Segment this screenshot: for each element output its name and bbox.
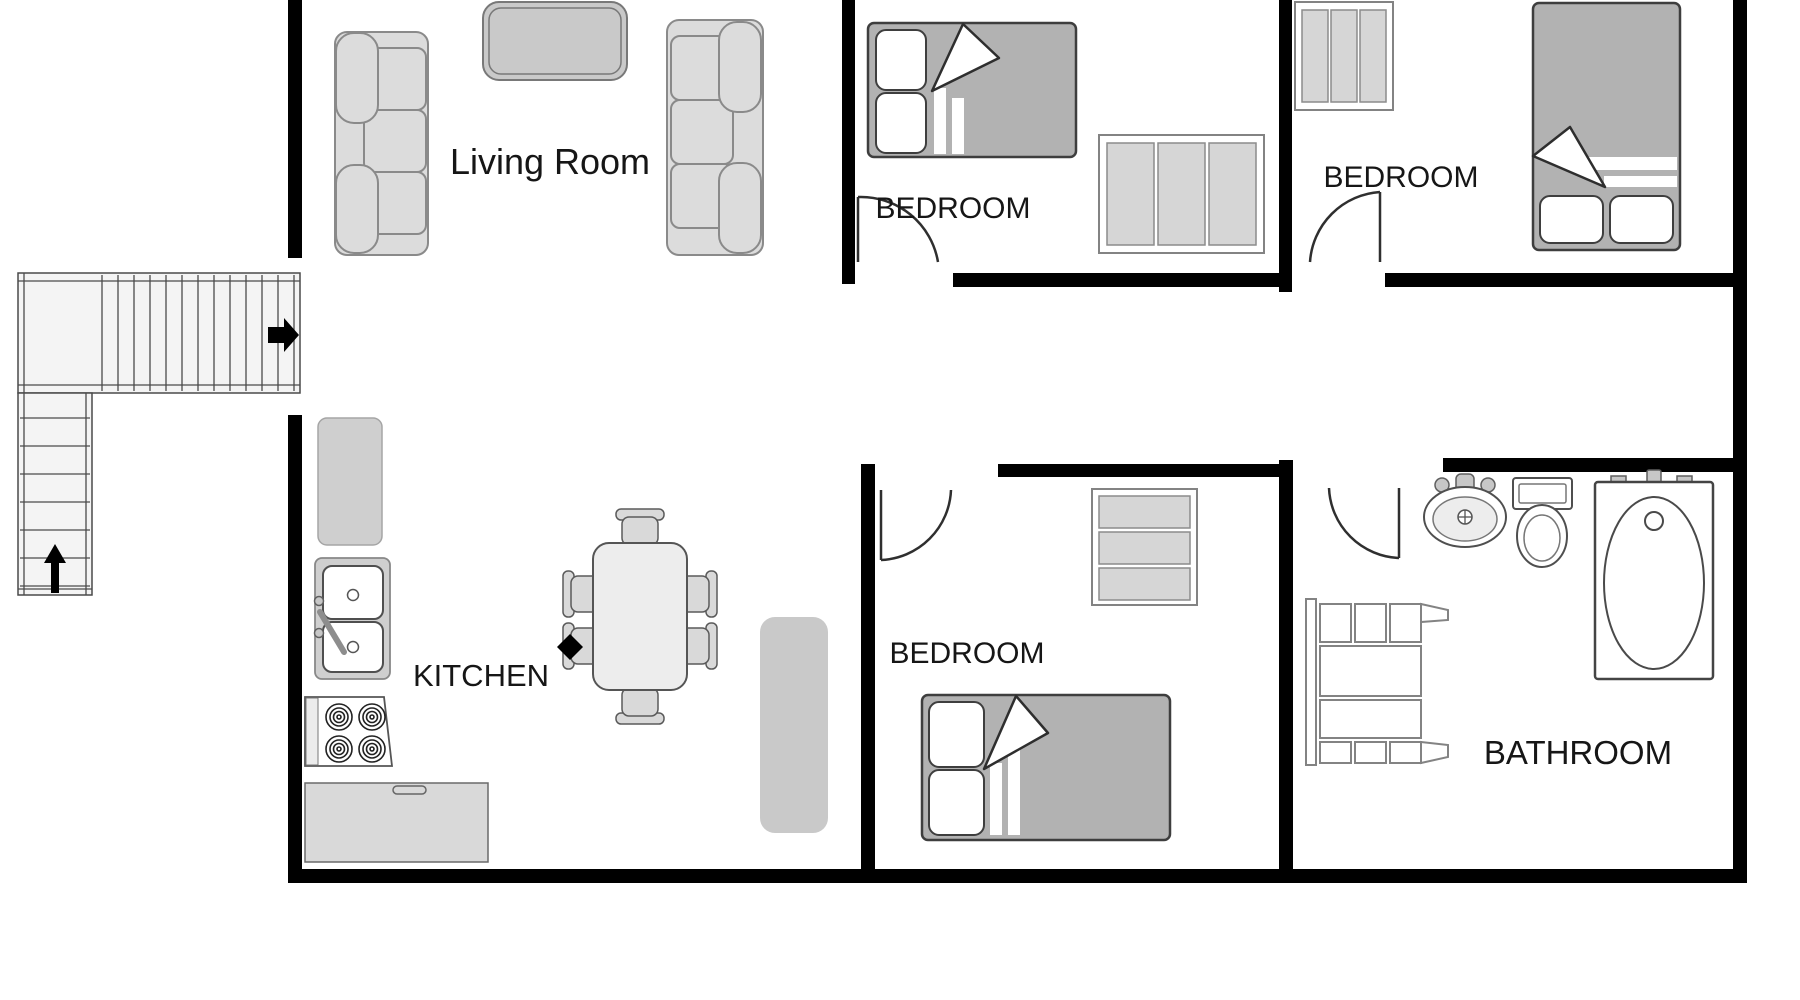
wall-bedroom-top-bottom bbox=[953, 273, 1290, 287]
wardrobe-bedroom-right bbox=[1295, 2, 1393, 110]
floor-plan-canvas: Living Room BEDROOM bbox=[0, 0, 1800, 1000]
living-room: Living Room bbox=[335, 2, 763, 255]
faucet-knob-icon bbox=[315, 597, 324, 606]
wall-bedroom-bottom-top bbox=[998, 464, 1293, 477]
stove bbox=[305, 697, 392, 766]
bed-bottom bbox=[922, 695, 1170, 840]
door-bedroom-right bbox=[1310, 192, 1380, 262]
dining-table-set bbox=[563, 509, 717, 724]
kitchen-counter bbox=[305, 783, 488, 862]
bedroom-top: BEDROOM bbox=[868, 23, 1264, 253]
bedroom-right-label: BEDROOM bbox=[1323, 161, 1478, 194]
living-room-label: Living Room bbox=[450, 141, 650, 182]
refrigerator bbox=[318, 418, 382, 545]
bed-right bbox=[1533, 3, 1680, 250]
bedroom-right: BEDROOM bbox=[1295, 2, 1680, 250]
bedroom-bottom-label: BEDROOM bbox=[889, 637, 1044, 670]
wall-living-bedroom bbox=[842, 0, 855, 284]
bathroom-shelving bbox=[1306, 599, 1448, 765]
wall-bedroom-right-bottom bbox=[1385, 273, 1747, 287]
wall-right bbox=[1733, 0, 1747, 883]
wall-left-upper bbox=[288, 0, 302, 258]
kitchen-sink bbox=[315, 558, 391, 679]
wall-bottom bbox=[288, 869, 1747, 883]
bathroom-sink bbox=[1424, 474, 1506, 547]
coffee-table bbox=[483, 2, 627, 80]
door-bathroom bbox=[1329, 488, 1399, 558]
bathtub bbox=[1595, 470, 1713, 679]
toilet bbox=[1513, 478, 1572, 567]
wall-bedroom-divider bbox=[1279, 0, 1292, 292]
kitchen-label: KITCHEN bbox=[413, 658, 549, 693]
staircase bbox=[18, 273, 300, 595]
bathroom: BATHROOM bbox=[1306, 470, 1713, 771]
kitchen: KITCHEN bbox=[305, 418, 828, 862]
bedroom-top-label: BEDROOM bbox=[875, 192, 1030, 225]
bedroom-bottom: BEDROOM bbox=[889, 489, 1197, 840]
wall-bedroom-bottom-left bbox=[861, 464, 875, 883]
faucet-knob-icon bbox=[315, 629, 324, 638]
floor-plan: Living Room BEDROOM bbox=[0, 0, 1800, 1000]
sofa-right bbox=[667, 20, 763, 255]
stair-flight-horizontal bbox=[18, 273, 300, 393]
dining-table bbox=[593, 543, 687, 690]
wardrobe-bedroom-top bbox=[1099, 135, 1264, 253]
wall-left-kitchen bbox=[288, 415, 302, 883]
hallway-rug bbox=[760, 617, 828, 833]
dresser-bedroom-bottom bbox=[1092, 489, 1197, 605]
bed-top bbox=[868, 23, 1076, 157]
sofa-left bbox=[335, 32, 428, 255]
bathroom-label: BATHROOM bbox=[1484, 734, 1672, 771]
wall-bathroom-top bbox=[1443, 458, 1733, 472]
chair bbox=[616, 509, 664, 545]
door-bedroom-bottom bbox=[881, 490, 951, 560]
wall-bathroom-left bbox=[1279, 460, 1293, 883]
chair bbox=[616, 688, 664, 724]
